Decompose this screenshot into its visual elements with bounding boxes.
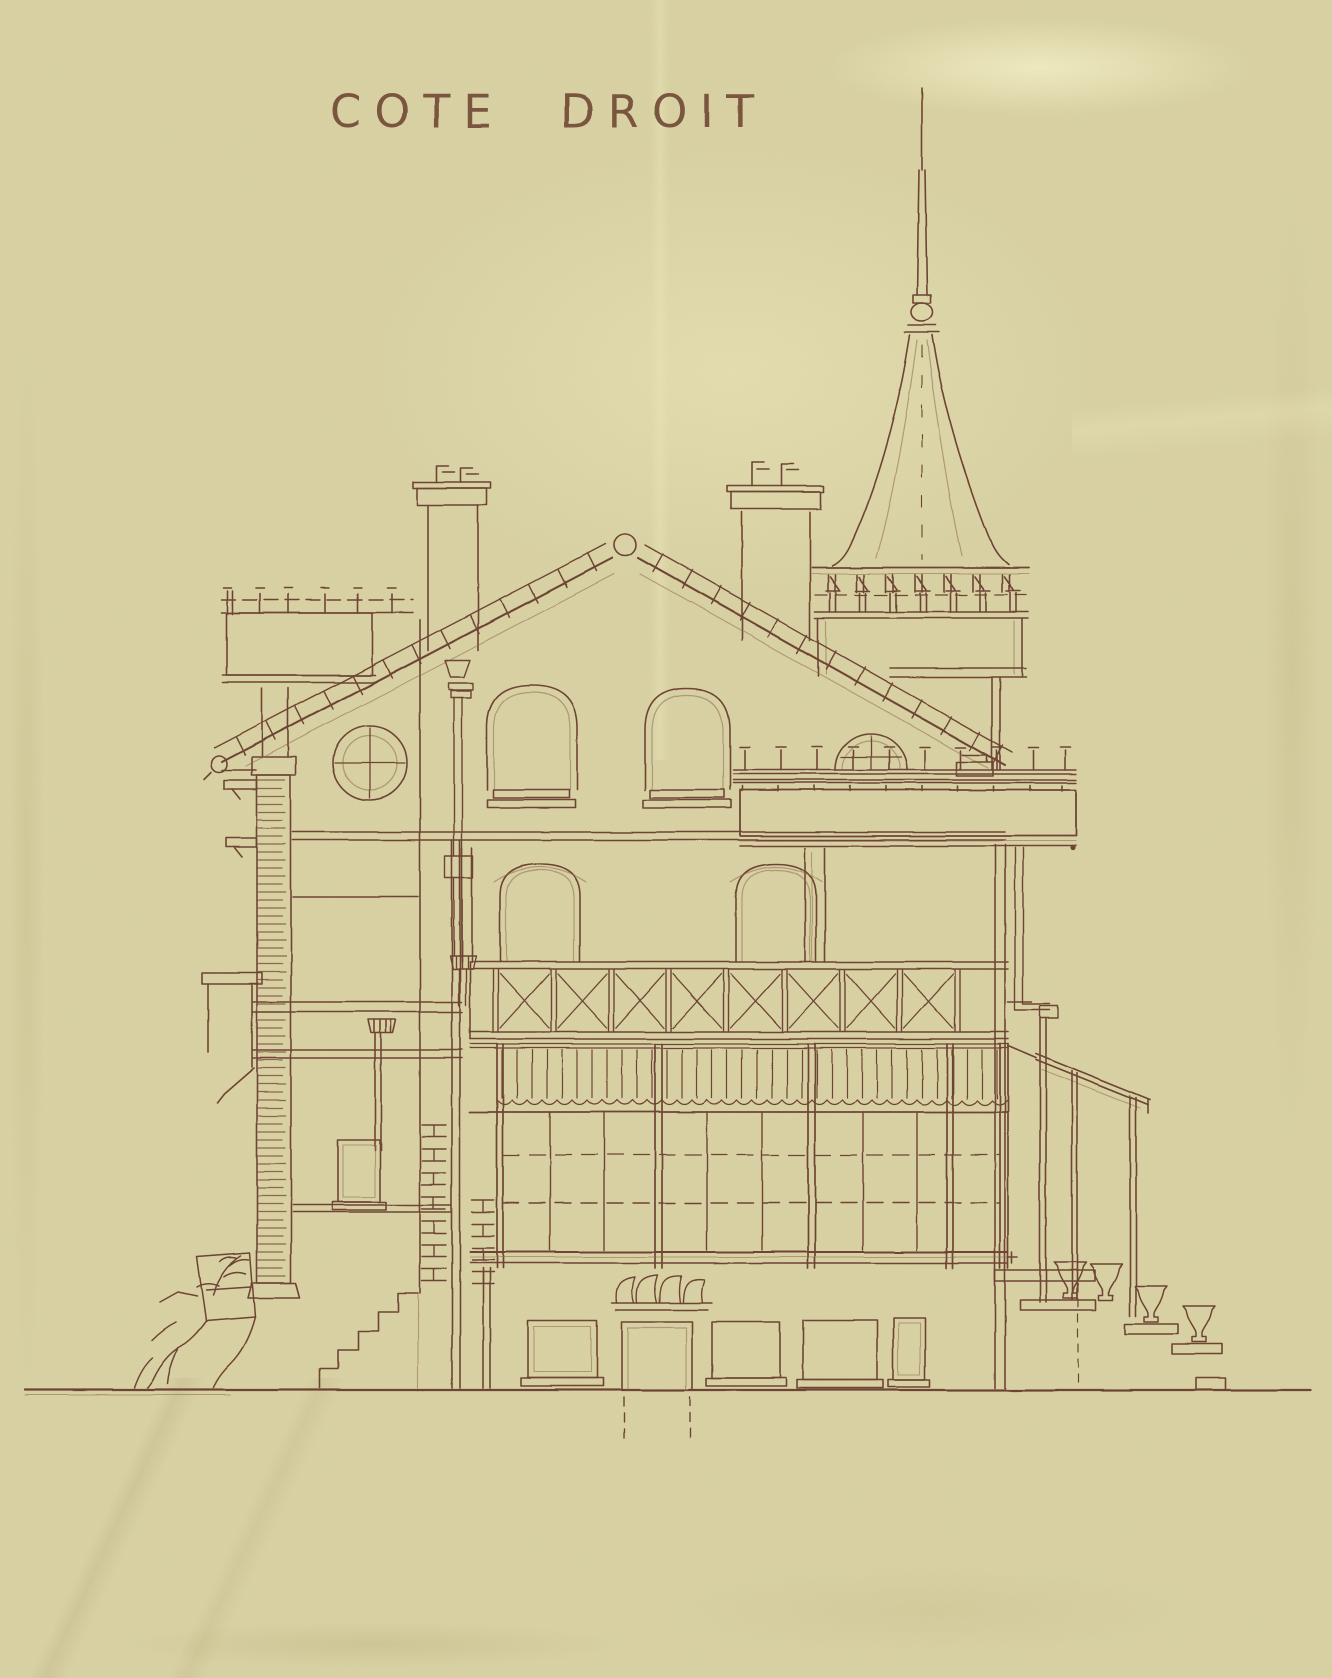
basement-windows [521,1318,930,1388]
roof-end-block-right [957,755,993,776]
roof-deck-railing [222,588,413,682]
side-porch [1008,1018,1150,1316]
turret-eave [812,568,1028,618]
annex-window [332,1140,386,1210]
basement-wall [483,1268,1005,1388]
aged-drawing-paper: COTE DROIT [0,0,1332,1678]
gable-roof [204,534,1012,779]
entrance-door [622,1322,692,1438]
second-floor-windows [462,845,1005,1268]
turret-spire [832,88,1008,566]
rock-garden [134,1253,255,1388]
downspout-right [1008,848,1058,1018]
arched-window-center [643,688,731,808]
drawing-title: COTE DROIT [330,85,767,138]
door-ornament [612,1275,712,1310]
corner-lantern [450,956,476,1005]
balcony-balustrade [733,747,1076,791]
pier-ledges [202,780,262,1103]
roof-vent [368,1020,396,1150]
left-chimney [413,466,491,650]
conservatory-glazing [470,1044,1018,1268]
halfround-window [835,734,907,770]
stairs-left [320,1293,418,1388]
ground-floor-sill [470,1252,1018,1263]
arched-window-left [487,685,577,808]
ground-line [25,1390,1310,1395]
oculus-window [333,726,407,800]
roof-cresting-left [236,553,596,755]
awning-valance [470,1044,1008,1105]
brick-pier [202,688,300,1298]
veranda-x-railing [470,962,1008,1039]
right-chimney [727,462,824,640]
elevation-drawing: COTE DROIT [0,0,1332,1678]
balcony-fascia [740,790,1076,851]
